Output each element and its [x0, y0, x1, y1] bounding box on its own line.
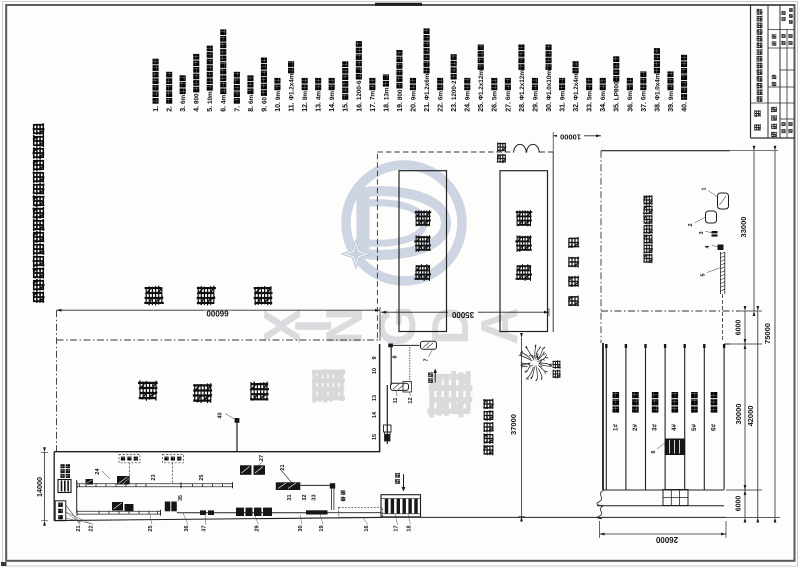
svg-text:23.: 23. — [451, 102, 458, 112]
svg-text:16: 16 — [364, 525, 370, 531]
svg-text:21.: 21. — [424, 102, 431, 112]
svg-text:25: 25 — [148, 525, 154, 531]
svg-text:34.: 34. — [600, 102, 607, 112]
svg-text:25.: 25. — [478, 102, 485, 112]
svg-text:30: 30 — [298, 525, 304, 531]
svg-text:37.: 37. — [641, 102, 648, 112]
svg-text:32: 32 — [302, 494, 308, 500]
svg-text:6000: 6000 — [736, 320, 743, 336]
svg-text:60: 60 — [261, 96, 268, 104]
svg-text:29.: 29. — [532, 102, 539, 112]
svg-text:37: 37 — [202, 525, 208, 531]
svg-text:20.: 20. — [410, 102, 417, 112]
svg-text:31.: 31. — [560, 102, 567, 112]
svg-text:1#: 1# — [612, 424, 619, 431]
svg-text:12: 12 — [408, 397, 414, 403]
svg-text:26.: 26. — [492, 102, 499, 112]
svg-text:9m: 9m — [465, 91, 472, 101]
svg-text:24: 24 — [95, 468, 101, 475]
svg-text:8: 8 — [393, 355, 399, 358]
svg-text:6m: 6m — [438, 91, 445, 101]
svg-text:31: 31 — [287, 494, 293, 500]
svg-text:25: 25 — [199, 474, 205, 480]
svg-text:12.: 12. — [302, 102, 309, 112]
svg-text:23: 23 — [151, 474, 157, 480]
svg-text:6000: 6000 — [736, 496, 743, 512]
svg-text:33000: 33000 — [739, 217, 748, 238]
svg-text:7m: 7m — [370, 91, 377, 101]
svg-text:35: 35 — [178, 495, 184, 501]
svg-text:N: N — [316, 307, 374, 345]
svg-text:10000: 10000 — [560, 133, 581, 142]
svg-text:2.: 2. — [167, 106, 174, 112]
svg-text:7: 7 — [424, 358, 430, 361]
svg-text:2#: 2# — [632, 424, 639, 431]
svg-text:2: 2 — [688, 223, 694, 226]
svg-text:800: 800 — [194, 93, 201, 104]
svg-text:40.: 40. — [682, 102, 689, 112]
svg-text:14000: 14000 — [35, 477, 44, 497]
svg-text:33: 33 — [312, 494, 318, 500]
svg-text:29: 29 — [255, 525, 261, 531]
svg-text:18.: 18. — [383, 102, 390, 112]
svg-text:27: 27 — [259, 455, 265, 461]
svg-text:17: 17 — [394, 525, 400, 531]
svg-text:5m: 5m — [587, 91, 594, 101]
svg-text:37000: 37000 — [509, 414, 518, 435]
svg-text:6#: 6# — [711, 424, 718, 431]
svg-text:Φ1.2x12m: Φ1.2x12m — [519, 70, 526, 100]
svg-text:3: 3 — [699, 231, 705, 234]
svg-text:6.: 6. — [221, 106, 228, 112]
svg-text:9m: 9m — [410, 91, 417, 101]
svg-text:9: 9 — [372, 356, 378, 359]
svg-text:4.: 4. — [194, 106, 201, 112]
svg-text:9m: 9m — [532, 91, 539, 101]
svg-text:28.: 28. — [519, 102, 526, 112]
svg-text:1200-6: 1200-6 — [356, 80, 363, 100]
svg-text:5.: 5. — [207, 106, 214, 112]
svg-text:6m: 6m — [600, 91, 607, 101]
svg-text:11.: 11. — [289, 102, 296, 111]
svg-text:5#: 5# — [691, 424, 698, 431]
svg-text:15.: 15. — [343, 102, 350, 112]
svg-text:1: 1 — [702, 187, 708, 190]
svg-text:38.: 38. — [654, 102, 661, 112]
svg-text:6m: 6m — [180, 94, 187, 104]
svg-text:75000: 75000 — [763, 323, 772, 344]
svg-text:13.: 13. — [316, 102, 323, 112]
svg-text:Φ1.2x4m: Φ1.2x4m — [573, 73, 580, 100]
svg-text:19: 19 — [319, 525, 325, 531]
svg-text:16.: 16. — [356, 102, 363, 112]
svg-text:7.: 7. — [234, 106, 241, 112]
svg-text:13: 13 — [372, 395, 378, 401]
svg-text:9m: 9m — [329, 91, 336, 101]
svg-text:42000: 42000 — [746, 406, 755, 427]
svg-text:6m: 6m — [505, 91, 512, 101]
svg-text:Φ1.0x10m: Φ1.0x10m — [546, 70, 553, 100]
svg-text:6: 6 — [651, 450, 657, 453]
svg-text:4m: 4m — [316, 91, 323, 101]
svg-text:36.: 36. — [627, 102, 634, 112]
svg-text:6m: 6m — [641, 91, 648, 101]
svg-text:39.: 39. — [668, 102, 675, 112]
svg-text:4m: 4m — [221, 94, 228, 104]
svg-text:13m: 13m — [383, 87, 390, 100]
svg-text:35.: 35. — [614, 102, 621, 112]
svg-text:10m: 10m — [207, 91, 214, 104]
svg-text:27.: 27. — [505, 102, 512, 112]
svg-text:32.: 32. — [573, 102, 580, 112]
svg-text:10.: 10. — [275, 102, 282, 112]
svg-text:6m: 6m — [248, 94, 255, 104]
svg-text:9m: 9m — [559, 91, 566, 101]
svg-text:Φ1.2x12m: Φ1.2x12m — [478, 70, 485, 100]
svg-text:30.: 30. — [546, 102, 553, 112]
svg-text:6m: 6m — [627, 91, 634, 101]
svg-text:17.: 17. — [370, 102, 377, 112]
svg-text:8.: 8. — [248, 106, 255, 112]
svg-text:9.: 9. — [261, 106, 268, 112]
svg-text:3#: 3# — [652, 424, 659, 431]
svg-text:11: 11 — [393, 398, 399, 404]
svg-text:Φ1.0x4m: Φ1.0x4m — [654, 73, 661, 100]
svg-text:9m: 9m — [275, 91, 282, 101]
svg-text:14: 14 — [372, 411, 378, 418]
svg-text:33.: 33. — [587, 102, 594, 112]
svg-text:800: 800 — [397, 89, 404, 100]
svg-text:26000: 26000 — [655, 535, 678, 544]
svg-text:24.: 24. — [465, 102, 472, 112]
svg-text:14.: 14. — [329, 102, 336, 112]
svg-text:1.: 1. — [153, 106, 160, 112]
svg-text:5m: 5m — [492, 91, 499, 101]
svg-text:19.: 19. — [397, 102, 404, 112]
svg-text:1200-2: 1200-2 — [451, 80, 458, 100]
svg-text:8m: 8m — [302, 91, 309, 101]
svg-text:15: 15 — [372, 434, 378, 440]
svg-text:66000: 66000 — [206, 309, 229, 318]
svg-text:22: 22 — [89, 525, 95, 531]
svg-text:3.: 3. — [180, 106, 187, 112]
svg-text:30000: 30000 — [734, 404, 743, 425]
svg-text:21: 21 — [280, 464, 286, 470]
svg-text:10: 10 — [372, 368, 378, 374]
svg-text:36: 36 — [184, 525, 190, 531]
svg-text:40: 40 — [218, 412, 224, 418]
svg-text:18: 18 — [407, 525, 413, 531]
svg-text:Φ1.2x4m: Φ1.2x4m — [288, 73, 295, 100]
svg-text:35000: 35000 — [451, 310, 474, 319]
svg-text:5: 5 — [701, 273, 707, 276]
svg-text:9m: 9m — [668, 91, 675, 101]
svg-text:Φ1.2x6m: Φ1.2x6m — [424, 73, 431, 100]
svg-text:4#: 4# — [671, 424, 678, 431]
svg-text:LP800: LP800 — [614, 81, 621, 100]
svg-text:22.: 22. — [438, 102, 445, 112]
svg-text:21: 21 — [76, 525, 82, 531]
